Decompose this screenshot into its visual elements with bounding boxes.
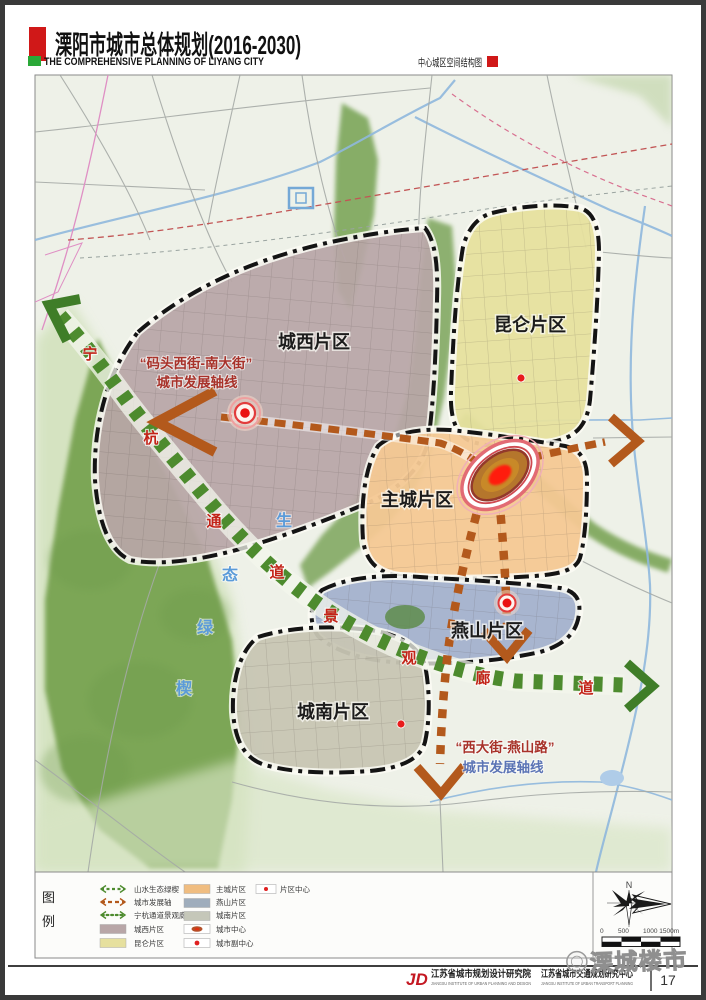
sub-center-chengxi — [227, 395, 263, 431]
area-center-dot-kunlun — [517, 374, 525, 382]
green-mottle — [88, 662, 192, 738]
map-sheet-name: 中心城区空间结构图 — [418, 56, 482, 69]
legend-label: 主城片区 — [216, 884, 246, 894]
legend-label: 城西片区 — [134, 924, 164, 934]
corridor-char: 杭 — [143, 429, 158, 447]
area-center-dot-chengnan — [397, 720, 405, 728]
legend-swatch-chengxi — [100, 925, 126, 934]
legend-box — [35, 872, 672, 958]
subtitle-green-mark — [28, 56, 41, 66]
scale-tick: 500 — [618, 928, 629, 935]
sub-center-yanshan — [494, 590, 520, 616]
axis-annotation-south-line1: “西大街-燕山路” — [456, 739, 555, 755]
institute1-name-cn: 江苏省城市规划设计研究院 — [431, 968, 531, 980]
legend-title-char: 例 — [42, 914, 55, 929]
axis-annotation-west-line2: 城市发展轴线 — [157, 374, 238, 390]
corridor-char: 道 — [578, 679, 593, 697]
corridor-char: 宁 — [82, 345, 97, 363]
sheet-red-mark — [487, 56, 498, 67]
axis-annotation-west-line1: “码头西街-南大街” — [140, 355, 253, 371]
legend-symbol-subcenter — [195, 941, 200, 946]
corridor-char: 廊 — [475, 669, 490, 687]
legend-label: 城南片区 — [216, 910, 246, 920]
institute2-name-en: JIANGSU INSTITUTE OF URBAN TRANSPORT PLA… — [541, 981, 634, 986]
wedge-char: 态 — [222, 565, 238, 584]
scale-tick: 1000 1500m — [643, 928, 679, 935]
legend-title-char: 图 — [42, 890, 55, 905]
district-label-zhucheng: 主城片区 — [381, 489, 453, 510]
wedge-char: 楔 — [176, 679, 192, 698]
institute1-name-en: JIANGSU INSTITUTE OF URBAN PLANNING AND … — [431, 981, 531, 986]
legend-label: 城市发展轴 — [134, 897, 172, 907]
green-mottle — [40, 736, 130, 804]
district-label-kunlun: 昆仑片区 — [494, 314, 566, 335]
corridor-char: 景 — [323, 607, 338, 625]
legend-swatch-chengnan — [184, 912, 210, 921]
header: 溧阳市城市总体规划(2016-2030) THE COMPREHENSIVE P… — [28, 27, 498, 69]
scale-bar-cell — [622, 937, 642, 942]
legend-symbol-area-center — [264, 887, 268, 891]
yanshan-park — [385, 605, 425, 629]
page-number: 17 — [660, 972, 676, 988]
legend-label: 燕山片区 — [216, 897, 246, 907]
wedge-char: 生 — [276, 511, 292, 530]
scale-tick: 0 — [600, 928, 604, 935]
legend-label: 山水生态绿楔 — [134, 884, 179, 894]
legend-label: 城市中心 — [216, 924, 246, 934]
legend-label: 城市副中心 — [216, 938, 254, 948]
legend-symbol-city-center-core — [195, 928, 200, 931]
corridor-char: 观 — [401, 650, 416, 667]
legend-swatch-yanshan — [184, 899, 210, 908]
pond — [600, 770, 624, 786]
watermark-badge — [567, 951, 588, 972]
sub-center-dot — [240, 408, 250, 418]
legend: 图 例 山水生态绿楔 城市发展轴 宁杭通道景观廊道 城西片区 昆仑片区 — [35, 872, 680, 958]
corridor-char: 道 — [269, 563, 284, 581]
legend-swatch-zhucheng — [184, 885, 210, 894]
sub-center-dot — [503, 599, 512, 608]
district-label-chengnan: 城南片区 — [297, 701, 369, 722]
wedge-char: 绿 — [197, 618, 214, 637]
plan-canvas: 溧阳市城市总体规划(2016-2030) THE COMPREHENSIVE P… — [0, 0, 706, 1000]
legend-label: 片区中心 — [280, 884, 310, 894]
legend-label: 昆仑片区 — [134, 938, 164, 948]
district-label-yanshan: 燕山片区 — [451, 620, 523, 641]
watermark-text: 溧城楼市 — [589, 947, 688, 976]
north-label: N — [626, 880, 633, 890]
district-label-chengxi: 城西片区 — [278, 331, 350, 352]
green-mottle — [160, 589, 230, 641]
axis-annotation-south-line2: 城市发展轴线 — [463, 759, 544, 775]
plan-page: 溧阳市城市总体规划(2016-2030) THE COMPREHENSIVE P… — [0, 0, 706, 1000]
scale-bar-cell — [602, 942, 622, 947]
page-subtitle-en: THE COMPREHENSIVE PLANNING OF LIYANG CIT… — [44, 56, 265, 68]
legend-swatch-kunlun — [100, 939, 126, 948]
scale-bar-cell — [661, 937, 681, 942]
scale-bar-cell — [641, 942, 661, 947]
corridor-char: 通 — [206, 513, 221, 530]
institute-logo: JD — [406, 970, 428, 989]
